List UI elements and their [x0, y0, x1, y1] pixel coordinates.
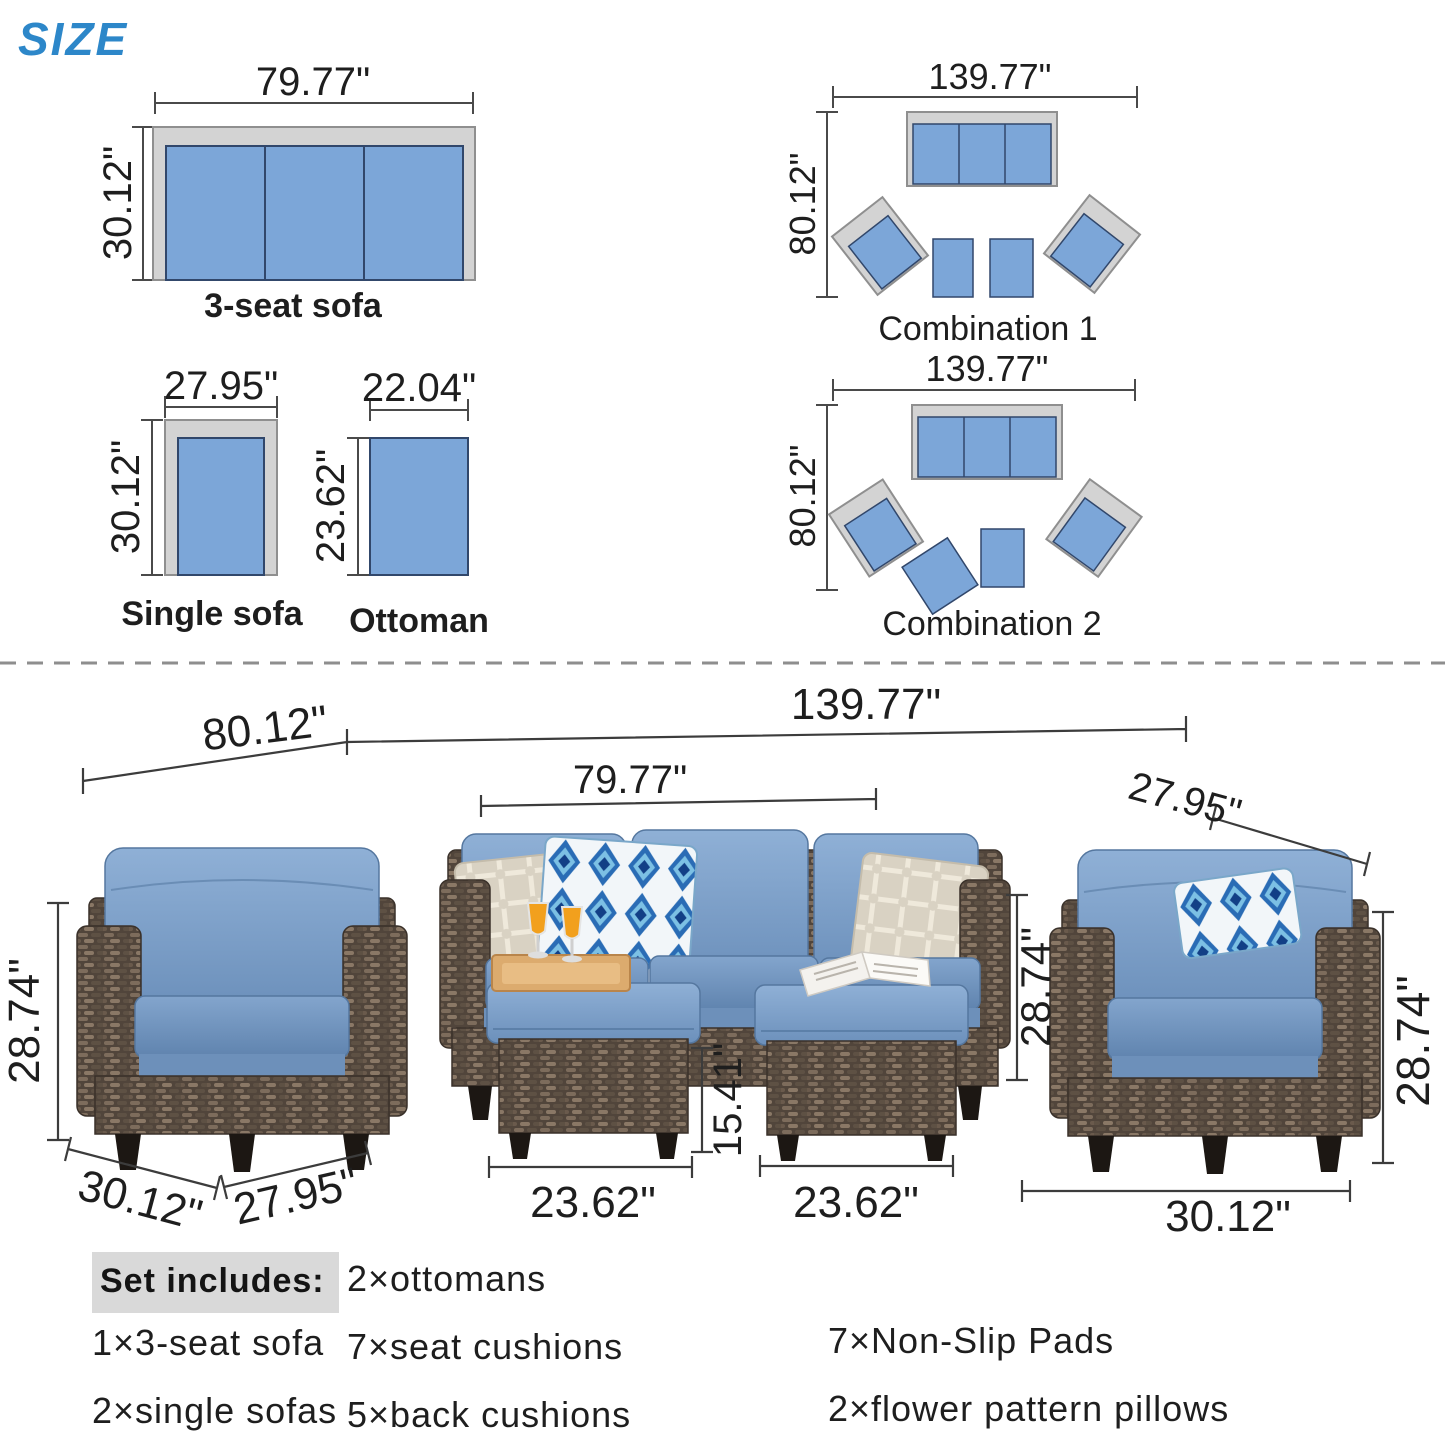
include-item-nonslip-pads: 7×Non-Slip Pads	[828, 1323, 1114, 1359]
include-item-back-cushions: 5×back cushions	[347, 1397, 631, 1433]
include-item-flower-pillows: 2×flower pattern pillows	[828, 1391, 1229, 1427]
ottoman-diagram	[347, 399, 468, 575]
dim-ottoman-depth: 23.62"	[311, 449, 351, 563]
caption-sofa3: 3-seat sofa	[204, 289, 382, 323]
page-title: SIZE	[18, 16, 128, 62]
dim-combo2-width: 139.77"	[926, 351, 1049, 387]
dim-scene-sofa-height: 28.74"	[1015, 927, 1057, 1047]
dim-sofa3-width: 79.77"	[256, 62, 370, 102]
caption-single: Single sofa	[121, 597, 302, 631]
dim-scene-right-chair-depth: 30.12"	[1165, 1195, 1291, 1239]
single-sofa-diagram	[141, 396, 277, 575]
include-item-ottomans: 2×ottomans	[347, 1261, 546, 1297]
dim-scene-right-ottoman-width: 23.62"	[793, 1181, 919, 1225]
right-armchair-illustration	[1050, 850, 1380, 1174]
dim-ottoman-width: 22.04"	[362, 368, 476, 408]
dim-single-depth: 30.12"	[106, 440, 146, 554]
ikat-pillow-chair	[1173, 867, 1302, 959]
caption-combo2: Combination 2	[882, 607, 1101, 641]
dim-combo1-depth: 80.12"	[785, 153, 821, 256]
dim-combo2-depth: 80.12"	[785, 445, 821, 548]
combination1-diagram	[816, 86, 1140, 297]
left-ottoman-illustration	[487, 983, 700, 1159]
caption-ottoman: Ottoman	[349, 604, 489, 638]
set-includes-heading: Set includes:	[92, 1252, 339, 1313]
include-item-3seat-sofa: 1×3-seat sofa	[92, 1325, 324, 1361]
dim-combo1-width: 139.77"	[929, 59, 1052, 95]
combination2-diagram	[816, 379, 1142, 614]
dim-scene-sofa-span: 79.77"	[573, 760, 687, 800]
size-guide-infographic: SIZE 79.77" 30.12" 3-seat sofa 27.95" 30…	[0, 0, 1445, 1445]
include-item-single-sofas: 2×single sofas	[92, 1393, 337, 1429]
dim-scene-left-chair-height: 28.74"	[3, 958, 47, 1084]
dim-scene-left-ottoman-width: 23.62"	[530, 1181, 656, 1225]
sofa-top-view-diagram	[132, 92, 475, 280]
include-item-seat-cushions: 7×seat cushions	[347, 1329, 623, 1365]
right-ottoman-illustration	[755, 985, 968, 1161]
dim-scene-total-span: 139.77"	[791, 683, 941, 727]
dim-scene-right-chair-height: 28.74"	[1390, 975, 1436, 1106]
dim-single-width: 27.95"	[164, 366, 278, 406]
caption-combo1: Combination 1	[878, 312, 1097, 346]
dim-scene-ottoman-height: 15.41"	[708, 1043, 748, 1157]
left-armchair-illustration	[77, 848, 407, 1172]
dim-sofa3-depth: 30.12"	[98, 146, 138, 260]
